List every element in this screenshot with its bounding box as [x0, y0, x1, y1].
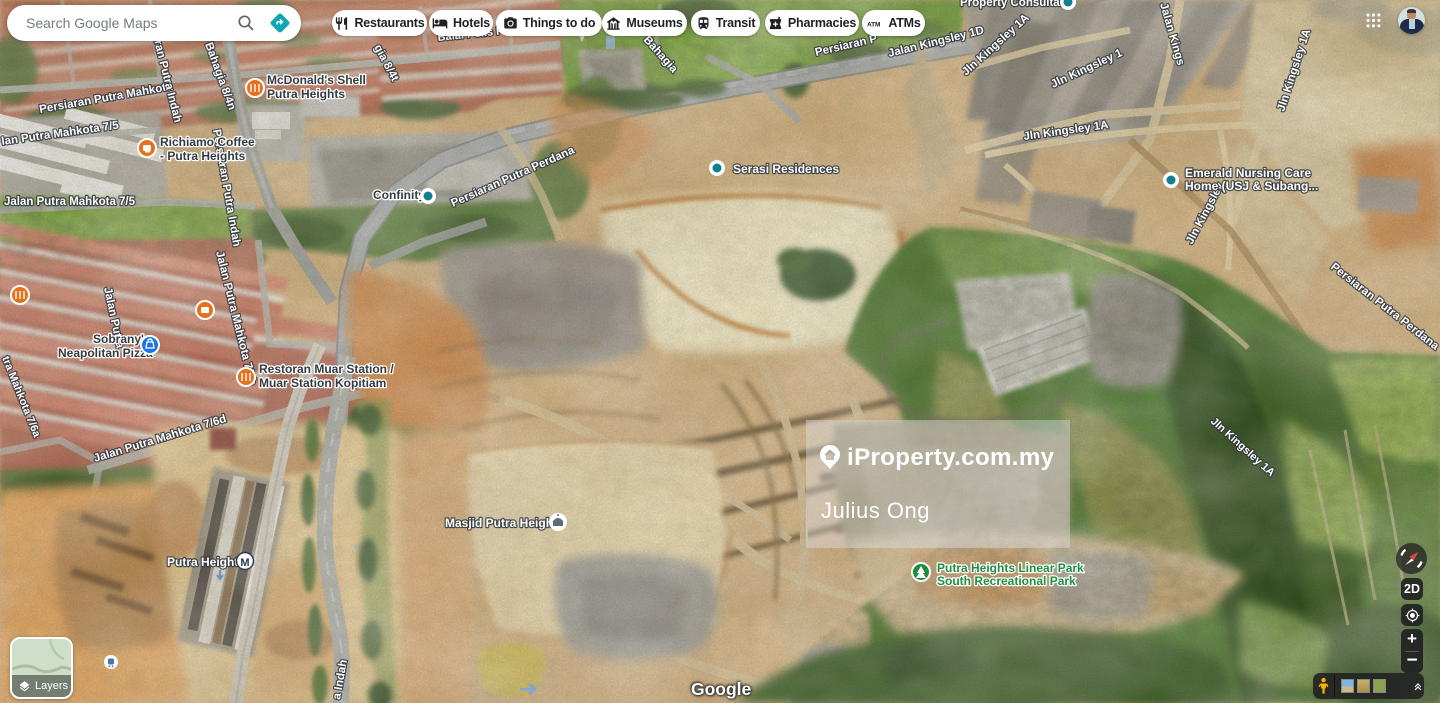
- svg-text:McDonald's Shell: McDonald's Shell: [267, 73, 366, 87]
- svg-text:Muar Station Kopitiam: Muar Station Kopitiam: [259, 376, 386, 390]
- svg-text:Neapolitan Pizza: Neapolitan Pizza: [58, 346, 153, 360]
- svg-text:Restoran Muar Station /: Restoran Muar Station /: [259, 362, 394, 376]
- svg-text:M: M: [240, 557, 249, 569]
- svg-text:Putra Heights: Putra Heights: [167, 555, 245, 569]
- svg-text:Masjid Putra Heights: Masjid Putra Heights: [445, 516, 564, 530]
- svg-text:Confinity: Confinity: [373, 188, 425, 202]
- svg-text:- Putra Heights: - Putra Heights: [160, 149, 246, 163]
- svg-text:Putra Heights: Putra Heights: [267, 87, 345, 101]
- svg-text:South Recreational Park: South Recreational Park: [937, 574, 1076, 588]
- svg-text:Property Consultant: Property Consultant: [960, 0, 1071, 9]
- svg-text:Putra Heights Linear Park: Putra Heights Linear Park: [937, 561, 1084, 575]
- svg-text:ATM: ATM: [867, 21, 881, 28]
- svg-text:Emerald Nursing Care: Emerald Nursing Care: [1185, 166, 1311, 180]
- svg-text:Home (USJ & Subang...: Home (USJ & Subang...: [1185, 179, 1318, 193]
- svg-text:Richiamo Coffee: Richiamo Coffee: [160, 135, 255, 149]
- svg-text:Jalan Putra Mahkota 7/5: Jalan Putra Mahkota 7/5: [4, 196, 136, 208]
- svg-text:Serasi Residences: Serasi Residences: [733, 162, 839, 176]
